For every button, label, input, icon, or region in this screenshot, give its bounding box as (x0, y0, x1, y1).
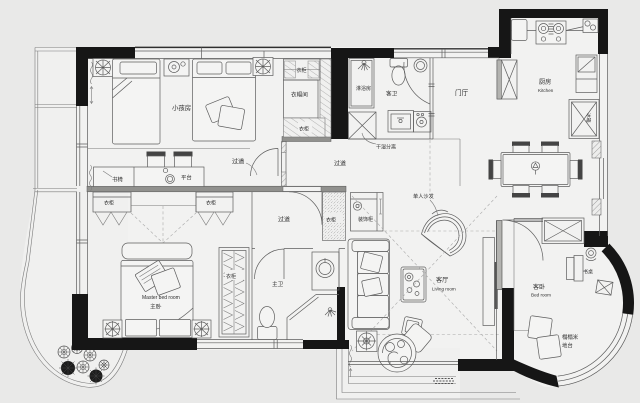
svg-text:客卫: 客卫 (386, 90, 398, 98)
svg-text:Master bed room: Master bed room (142, 295, 180, 301)
svg-text:小孩房: 小孩房 (172, 103, 191, 112)
svg-text:平台: 平台 (181, 174, 192, 182)
svg-text:门厅: 门厅 (455, 88, 469, 97)
svg-text:Kitchen: Kitchen (538, 88, 554, 93)
svg-text:衣柜: 衣柜 (206, 200, 216, 207)
svg-text:地台: 地台 (562, 342, 573, 350)
svg-text:Bed room: Bed room (531, 293, 551, 298)
svg-text:客厅: 客厅 (436, 276, 448, 284)
svg-text:榻榻米: 榻榻米 (562, 333, 579, 341)
svg-text:过道: 过道 (232, 158, 244, 166)
svg-text:过道: 过道 (278, 216, 290, 224)
svg-text:衣柜: 衣柜 (326, 217, 336, 224)
svg-text:衣柜: 衣柜 (299, 126, 309, 133)
svg-text:厨房: 厨房 (539, 78, 551, 86)
svg-text:干湿分离: 干湿分离 (376, 144, 396, 151)
svg-text:主卫: 主卫 (272, 280, 284, 288)
svg-text:衣柜: 衣柜 (226, 273, 236, 280)
svg-text:淋浴房: 淋浴房 (356, 85, 371, 92)
svg-text:书桌: 书桌 (583, 269, 593, 276)
svg-text:衣柜: 衣柜 (104, 200, 114, 207)
svg-text:冰箱: 冰箱 (585, 113, 592, 123)
svg-text:书椅: 书椅 (112, 176, 123, 184)
svg-text:衣帽间: 衣帽间 (291, 91, 308, 99)
svg-text:主卧: 主卧 (150, 303, 162, 311)
svg-text:客卧: 客卧 (533, 283, 545, 291)
svg-text:装饰柜: 装饰柜 (358, 216, 373, 223)
svg-text:Living room: Living room (432, 287, 456, 292)
svg-text:单人沙发: 单人沙发 (413, 192, 434, 200)
svg-text:过道: 过道 (334, 160, 346, 168)
svg-text:衣柜: 衣柜 (297, 67, 307, 74)
